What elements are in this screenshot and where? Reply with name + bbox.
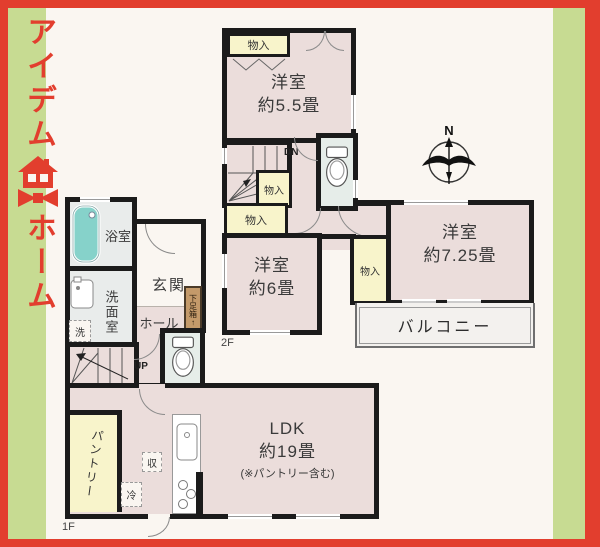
window <box>250 330 290 335</box>
toilet-room-1f <box>160 328 205 388</box>
logo-text-top: アイデム <box>23 16 53 152</box>
compass-icon: N <box>420 120 478 195</box>
pantry: パントリー <box>70 410 122 512</box>
closet-label: 物入 <box>245 212 267 228</box>
bathroom-label: 浴室 <box>100 228 136 246</box>
room-bedroom-5_5-label: 洋室 約5.5畳 <box>222 72 356 118</box>
closet-label: 物入 <box>248 37 270 53</box>
room-bedroom-7_25-label: 洋室 約7.25畳 <box>386 222 534 268</box>
storage-box: 収 <box>142 452 162 472</box>
fridge-box: 冷 <box>121 482 142 507</box>
closet-2f-top: 物入 <box>227 33 290 57</box>
window <box>296 514 340 519</box>
room-bedroom-6-label: 洋室 約6畳 <box>222 255 322 301</box>
closet-2f-mid: 物入 <box>224 203 288 237</box>
window <box>222 254 227 288</box>
closet-label: 物入 <box>264 182 284 197</box>
toilet-icon <box>322 144 352 194</box>
closet-2f-right: 物入 <box>350 235 390 305</box>
toilet-icon <box>168 336 198 382</box>
pantry-label: パントリー <box>80 428 107 500</box>
washroom-label: 洗面室 <box>102 290 120 335</box>
sink-icon <box>70 276 94 310</box>
balcony: バルコニー <box>355 303 535 348</box>
stairs-up-label: UP <box>134 361 148 372</box>
window <box>351 95 356 129</box>
shoebox: 下足箱 ↑ <box>184 286 202 334</box>
washer-box: 洗 <box>69 320 91 342</box>
window <box>228 514 272 519</box>
window <box>404 200 468 205</box>
room-ldk-label: LDK 約19畳 (※パントリー含む) <box>220 418 355 482</box>
toilet-room-2f <box>316 133 358 211</box>
wall-segment <box>196 472 203 514</box>
kitchen-sink-icon <box>176 423 198 461</box>
window <box>353 180 358 198</box>
balcony-label: バルコニー <box>398 313 493 337</box>
folding-door-icon <box>232 58 286 71</box>
window <box>222 148 227 164</box>
bathtub-icon <box>71 204 101 264</box>
closet-label: 物入 <box>360 263 380 278</box>
compass-north-label: N <box>444 123 453 138</box>
stairs-icon <box>70 347 134 385</box>
logo-text-bottom: ホーム <box>23 212 53 314</box>
washer-label: 洗 <box>75 324 85 339</box>
floor-1f-tag: 1F <box>62 521 75 533</box>
stove-icon <box>176 478 198 512</box>
window <box>80 197 110 202</box>
fridge-label: 冷 <box>127 487 137 502</box>
aidemu-home-logo: アイデム ホーム <box>12 16 64 314</box>
house-icon <box>16 156 60 208</box>
floor-2f-tag: 2F <box>221 337 234 349</box>
entrance-step-line <box>136 306 184 307</box>
shoebox-label: 下足箱 <box>188 294 199 318</box>
right-green-band <box>553 8 585 539</box>
up-arrow-glyph: ↑ <box>191 318 195 327</box>
storage-label: 収 <box>147 455 157 470</box>
